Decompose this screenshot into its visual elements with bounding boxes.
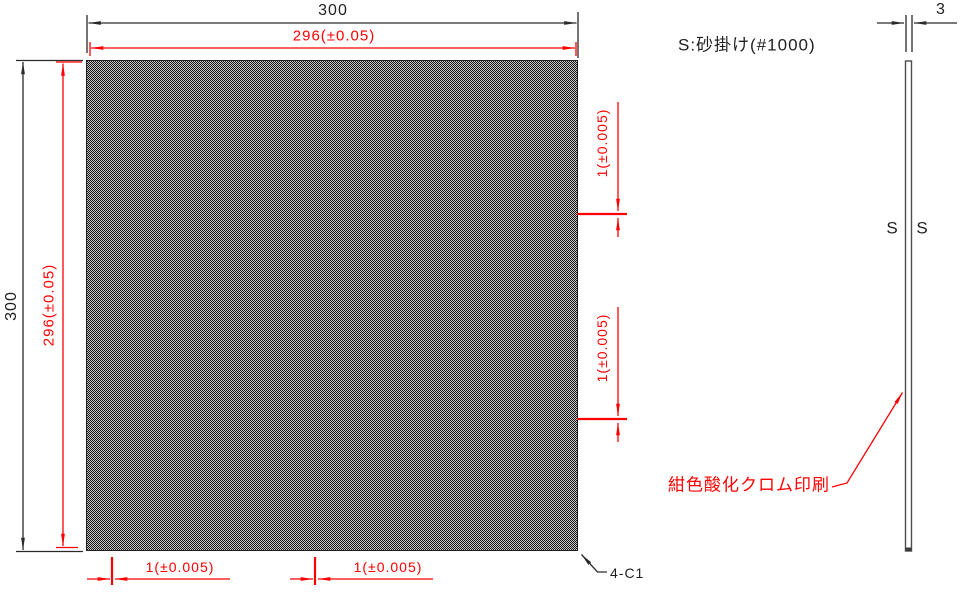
chamfer-leader [582, 555, 608, 573]
thickness-dimension [877, 15, 957, 52]
dim-top-outer-width: 300 [318, 3, 348, 19]
print-note-leader [832, 393, 903, 488]
plate-face [87, 61, 578, 551]
dim-side-thickness: 3 [936, 2, 946, 18]
surface-mark-right: S [916, 220, 927, 237]
surface-mark-left: S [886, 220, 897, 237]
dim-top-effective-width: 296(±0.05) [293, 29, 375, 44]
front-view [87, 61, 578, 551]
sand-blast-note: S:砂掛け(#1000) [678, 37, 816, 54]
dim-left-effective-height: 296(±0.05) [42, 264, 57, 346]
side-view-bottom-cap [906, 548, 912, 552]
print-note: 紺色酸化クロム印刷 [668, 477, 830, 494]
side-view [877, 15, 957, 551]
drawing-linework [0, 0, 960, 592]
dim-right-pitch-bottom: 1(±0.005) [595, 314, 609, 383]
dim-bottom-pitch-left: 1(±0.005) [146, 560, 215, 574]
chamfer-label: 4-C1 [610, 566, 644, 580]
side-view-outline [906, 61, 912, 551]
dim-bottom-pitch-right: 1(±0.005) [354, 560, 423, 574]
dim-left-outer-height: 300 [4, 291, 20, 321]
dim-right-pitch-top: 1(±0.005) [595, 109, 609, 178]
drawing-canvas: 300 296(±0.05) 300 296(±0.05) 1(±0.005) … [0, 0, 960, 592]
